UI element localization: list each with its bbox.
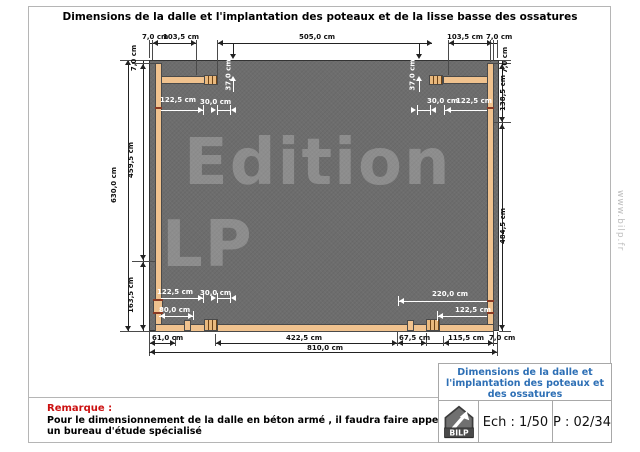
dim-line xyxy=(218,43,432,44)
arrowhead xyxy=(231,295,236,301)
bilp-logo-icon: BILP xyxy=(442,404,476,440)
dim-line xyxy=(215,343,497,344)
beam-joint xyxy=(487,107,494,109)
arrowhead xyxy=(416,54,422,59)
arrowhead xyxy=(140,255,146,260)
dim-line xyxy=(437,316,487,317)
plan-page: Dimensions de la dalle et l'implantation… xyxy=(0,0,640,452)
dim-line xyxy=(419,80,420,92)
dim-label: 7,0 cm xyxy=(489,334,515,342)
dim-label: 37,0 cm xyxy=(409,59,417,90)
logo-cell: BILP xyxy=(439,401,479,443)
scale-cell: Ech : 1/50 xyxy=(479,401,553,443)
beam-joint xyxy=(153,299,163,301)
dim-line xyxy=(398,296,399,306)
dim-line xyxy=(417,110,430,111)
arrowhead xyxy=(211,295,216,301)
arrowhead xyxy=(438,313,443,319)
dim-line xyxy=(437,311,438,321)
bilp-logo-text: BILP xyxy=(449,429,469,438)
arrowhead xyxy=(499,325,505,330)
arrowhead xyxy=(218,40,223,46)
pointer-line xyxy=(419,43,420,54)
pointer-line xyxy=(233,43,234,54)
arrowhead xyxy=(427,40,432,46)
watermark-lp: LP xyxy=(162,213,254,277)
title-block-title: Dimensions de la dalle et l'implantation… xyxy=(439,364,611,401)
dim-label: 505,0 cm xyxy=(299,33,335,41)
arrowhead xyxy=(231,107,236,113)
dim-label: 122,5 cm xyxy=(157,288,193,296)
arrowhead xyxy=(230,54,236,59)
dim-label: 7,0 cm xyxy=(486,33,512,41)
dim-label: 115,5 cm xyxy=(448,334,484,342)
beam-joint xyxy=(155,107,162,109)
dim-label: 122,5 cm xyxy=(455,306,491,314)
extension-line xyxy=(494,122,511,123)
dim-label: 37,0 cm xyxy=(225,59,233,90)
dim-line xyxy=(203,293,204,303)
dim-line xyxy=(233,80,234,92)
extension-line xyxy=(497,40,498,58)
dim-label: 103,5 cm xyxy=(447,33,483,41)
dim-line xyxy=(444,105,445,115)
extension-line xyxy=(196,40,197,75)
dim-label: 810,0 cm xyxy=(305,344,345,352)
arrowhead xyxy=(492,349,497,355)
dim-line xyxy=(161,110,203,111)
arrowhead xyxy=(150,349,155,355)
dim-line xyxy=(398,301,487,302)
dim-line xyxy=(217,298,230,299)
arrowhead xyxy=(160,313,165,319)
dim-label: 484,5 cm xyxy=(499,208,507,244)
arrowhead xyxy=(216,340,221,346)
dim-line xyxy=(143,60,144,331)
arrowhead xyxy=(499,124,505,129)
arrowhead xyxy=(140,64,146,69)
dim-line xyxy=(193,311,194,320)
page-number-cell: P : 02/34 xyxy=(553,401,611,443)
dim-label: 138,5 cm xyxy=(499,75,507,111)
bottom-left-post-small xyxy=(184,320,191,331)
arrowhead xyxy=(140,325,146,330)
remark-text: Pour le dimensionnement de la dalle en b… xyxy=(47,415,467,437)
divider-line xyxy=(28,397,439,398)
arrowhead xyxy=(211,107,216,113)
dim-label: 220,0 cm xyxy=(432,290,468,298)
bottom-left-post xyxy=(204,319,218,331)
extension-line xyxy=(149,40,150,58)
arrowhead xyxy=(416,76,422,81)
dim-label: 122,5 cm xyxy=(456,97,492,105)
arrowhead xyxy=(446,107,451,113)
dim-label: 30,0 cm xyxy=(427,97,458,105)
top-right-post xyxy=(429,75,443,85)
beam-joint xyxy=(487,300,494,302)
dim-label: 459,5 cm xyxy=(127,142,135,178)
dim-label: 103,5 cm xyxy=(163,33,199,41)
top-right-beam xyxy=(443,76,488,84)
dim-line xyxy=(445,110,487,111)
dim-line xyxy=(203,105,204,115)
arrowhead xyxy=(399,298,404,304)
top-left-beam xyxy=(161,76,206,84)
title-block: Dimensions de la dalle et l'implantation… xyxy=(438,363,612,443)
dim-label: 7,0 cm xyxy=(130,45,138,71)
bottom-right-post-small xyxy=(407,320,414,331)
watermark-edition: Edition xyxy=(184,131,452,195)
dim-label: 163,5 cm xyxy=(127,277,135,313)
arrowhead xyxy=(392,340,397,346)
dim-label: 7,0 cm xyxy=(501,47,509,73)
extension-line xyxy=(132,261,155,262)
top-left-post xyxy=(204,75,218,85)
dim-line xyxy=(217,110,230,111)
arrowhead xyxy=(431,107,436,113)
extension-line xyxy=(499,331,511,332)
dim-label: 61,0 cm xyxy=(152,334,183,342)
remark-label: Remarque : xyxy=(47,403,112,414)
arrowhead xyxy=(140,262,146,267)
arrowhead xyxy=(411,107,416,113)
dim-label: 122,5 cm xyxy=(160,96,196,104)
dim-label: 67,5 cm xyxy=(399,334,430,342)
site-url: www.bilp.fr xyxy=(615,190,625,251)
dim-line xyxy=(149,352,497,353)
title-block-row: BILP Ech : 1/50 P : 02/34 xyxy=(439,401,611,443)
arrowhead xyxy=(230,76,236,81)
dim-label: 30,0 cm xyxy=(200,98,231,106)
page-title: Dimensions de la dalle et l'implantation… xyxy=(0,11,640,23)
extension-line xyxy=(493,40,494,60)
dim-label: 630,0 cm xyxy=(110,167,118,203)
dim-label: 422,5 cm xyxy=(286,334,322,342)
dim-line xyxy=(161,298,203,299)
